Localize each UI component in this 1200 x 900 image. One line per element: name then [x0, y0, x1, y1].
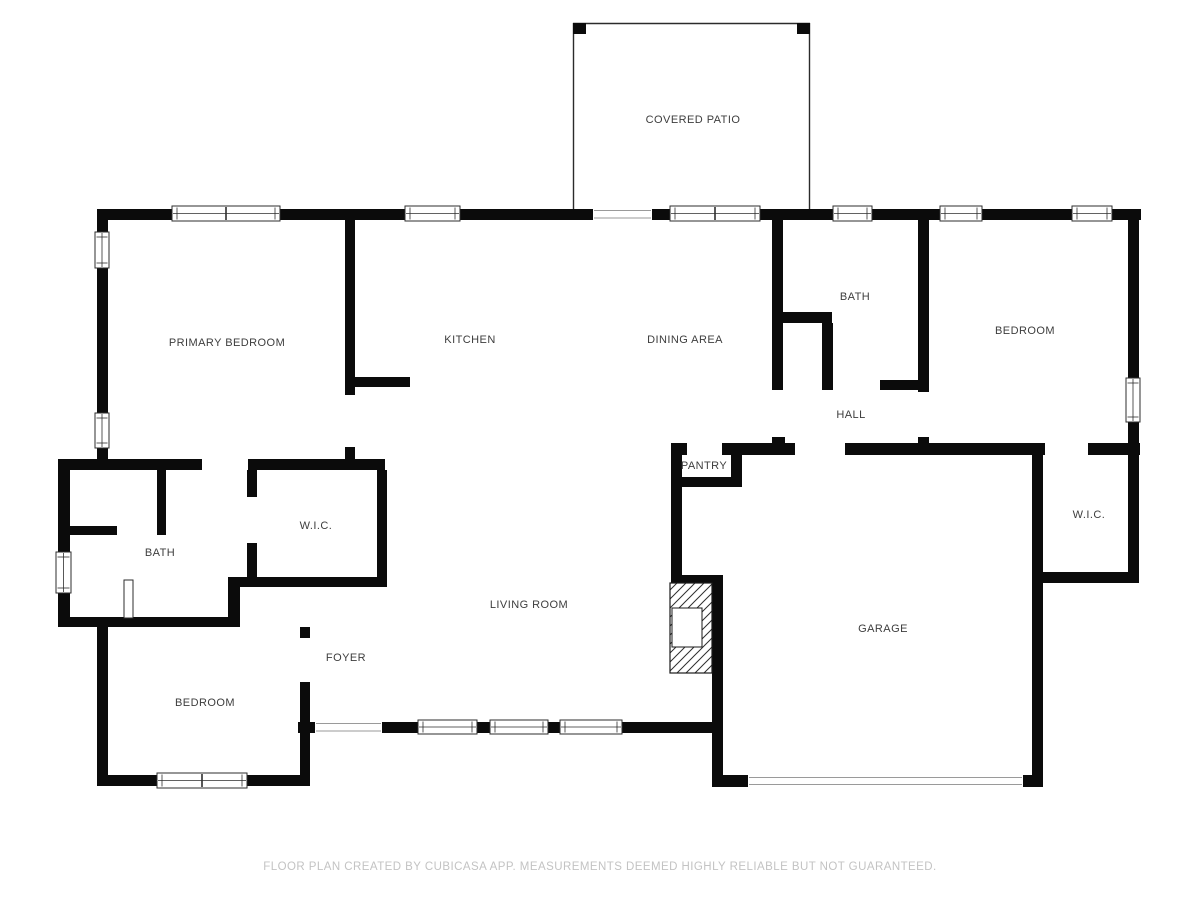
patio-post	[797, 23, 810, 34]
room-labels: COVERED PATIO PRIMARY BEDROOM KITCHEN DI…	[145, 114, 1105, 709]
wall-segment	[1032, 455, 1043, 787]
wall-segment	[97, 209, 172, 220]
wall-segment	[97, 627, 108, 786]
wall-segment	[377, 470, 387, 587]
wall-segment	[777, 312, 832, 323]
room-label-garage: GARAGE	[858, 623, 908, 635]
floorplan-page: COVERED PATIO PRIMARY BEDROOM KITCHEN DI…	[0, 0, 1200, 900]
wall-segment	[58, 526, 117, 535]
wall-segment	[822, 323, 833, 390]
wall-segment	[248, 459, 385, 470]
window	[405, 206, 460, 221]
wall-segment	[345, 447, 355, 460]
window	[490, 720, 548, 734]
room-label-primary-bedroom: PRIMARY BEDROOM	[169, 337, 285, 349]
wall-segment	[772, 220, 783, 390]
wall-segment	[760, 209, 833, 220]
wall-segment	[1023, 775, 1043, 787]
window	[172, 206, 280, 221]
window	[157, 773, 247, 788]
wall-segment	[712, 775, 748, 787]
wall-segment	[157, 470, 166, 535]
room-label-kitchen: KITCHEN	[444, 334, 495, 346]
window	[670, 206, 760, 221]
wall-segment	[228, 587, 240, 627]
wall-segment	[1112, 209, 1141, 220]
wall-segment	[247, 775, 310, 786]
wall-segment	[1128, 422, 1139, 583]
room-label-covered-patio: COVERED PATIO	[646, 114, 741, 126]
wall-segment	[97, 775, 157, 786]
window	[833, 206, 872, 221]
room-label-pantry: PANTRY	[681, 460, 728, 472]
window	[1072, 206, 1112, 221]
room-label-dining-area: DINING AREA	[647, 334, 723, 346]
wall-segment	[548, 722, 560, 733]
window	[56, 552, 71, 593]
wall-segment	[460, 209, 593, 220]
fireplace	[670, 583, 712, 673]
room-label-wic-left: W.I.C.	[300, 520, 333, 532]
wall-segment	[671, 455, 682, 575]
wall-segment	[845, 443, 1045, 455]
room-label-living-room: LIVING ROOM	[490, 599, 568, 611]
wall-segment	[300, 627, 310, 638]
room-label-bedroom-lower: BEDROOM	[175, 697, 235, 709]
patio-post	[573, 23, 586, 34]
fireplace-firebox	[672, 608, 702, 647]
window	[95, 413, 109, 448]
wall-segment	[872, 209, 940, 220]
wall-segment	[97, 220, 108, 232]
wall-segment	[712, 585, 723, 787]
wall-segment	[652, 209, 670, 220]
wall-segment	[58, 617, 238, 627]
window	[560, 720, 622, 734]
wall-segment	[622, 722, 715, 733]
wall-segment	[228, 577, 385, 587]
wall-segment	[298, 722, 315, 733]
wall-segment	[918, 220, 929, 392]
wall-segment	[58, 459, 70, 552]
wall-segment	[247, 470, 257, 497]
wall-segment	[982, 209, 1072, 220]
wall-segment	[1037, 572, 1138, 583]
window	[1126, 378, 1140, 422]
room-label-bedroom-right: BEDROOM	[995, 325, 1055, 337]
wall-segment	[97, 268, 108, 413]
wall-segment	[300, 682, 310, 786]
disclaimer-text: FLOOR PLAN CREATED BY CUBICASA APP. MEAS…	[0, 861, 1200, 873]
wall-segment	[671, 477, 742, 487]
window	[418, 720, 477, 734]
door-leaf	[124, 580, 133, 618]
room-label-foyer: FOYER	[326, 652, 366, 664]
wall-segment	[382, 722, 418, 733]
room-label-bath-upper: BATH	[840, 291, 870, 303]
wall-segment	[671, 443, 687, 455]
window	[95, 232, 109, 268]
wall-segment	[477, 722, 490, 733]
room-label-hall: HALL	[836, 409, 865, 421]
wall-segment	[58, 459, 202, 470]
wall-segment	[353, 377, 410, 387]
room-label-bath-left: BATH	[145, 547, 175, 559]
wall-segment	[280, 209, 405, 220]
wall-segment	[1128, 220, 1139, 378]
window	[940, 206, 982, 221]
wall-segment	[345, 220, 355, 395]
room-label-wic-right: W.I.C.	[1073, 509, 1106, 521]
door-openings	[124, 211, 1022, 785]
wall-segment	[722, 443, 795, 455]
floorplan-svg: COVERED PATIO PRIMARY BEDROOM KITCHEN DI…	[0, 0, 1200, 900]
